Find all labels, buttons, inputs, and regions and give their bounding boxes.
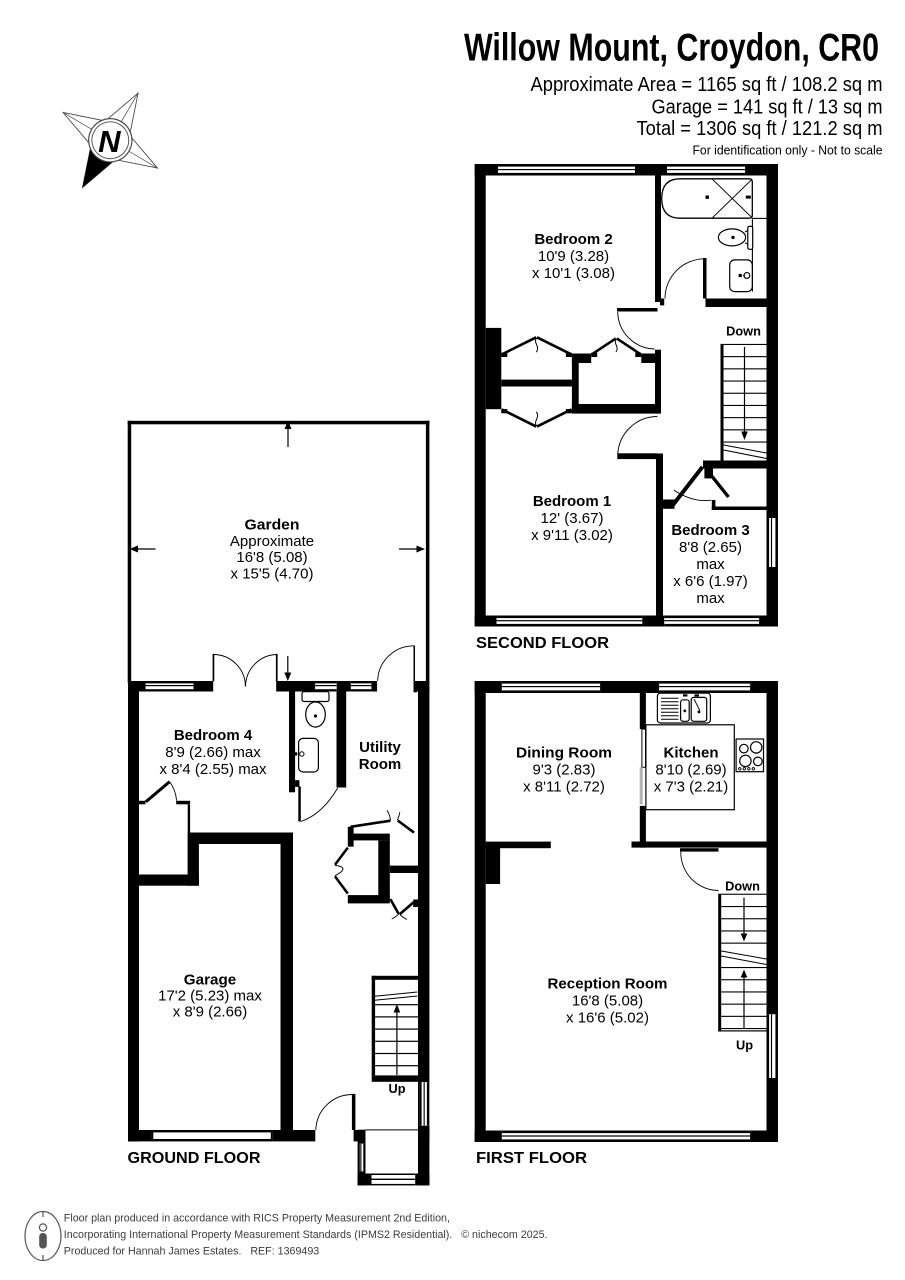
svg-text:10'9 (3.28): 10'9 (3.28) xyxy=(538,248,609,265)
svg-text:SECOND FLOOR: SECOND FLOOR xyxy=(476,635,609,652)
svg-text:Willow Mount, Croydon, CR0: Willow Mount, Croydon, CR0 xyxy=(464,27,879,70)
svg-text:Bedroom 4: Bedroom 4 xyxy=(174,727,253,744)
svg-text:N: N xyxy=(98,124,121,159)
svg-text:x 8'11 (2.72): x 8'11 (2.72) xyxy=(523,779,605,796)
svg-text:Produced for Hannah James Esta: Produced for Hannah James Estates. REF: … xyxy=(64,1246,320,1258)
svg-text:FIRST FLOOR: FIRST FLOOR xyxy=(476,1150,587,1167)
svg-text:Garden: Garden xyxy=(245,517,300,534)
svg-text:max: max xyxy=(696,590,725,607)
svg-text:9'3 (2.83): 9'3 (2.83) xyxy=(533,762,596,779)
svg-text:Bedroom 1: Bedroom 1 xyxy=(533,493,611,510)
svg-text:8'9 (2.66) max: 8'9 (2.66) max xyxy=(165,744,261,761)
svg-text:Down: Down xyxy=(726,324,761,339)
svg-text:Garage: Garage xyxy=(184,972,237,989)
svg-text:GROUND FLOOR: GROUND FLOOR xyxy=(128,1150,261,1167)
svg-text:x 8'9 (2.66): x 8'9 (2.66) xyxy=(173,1004,248,1021)
svg-text:x 8'4 (2.55) max: x 8'4 (2.55) max xyxy=(159,761,267,778)
svg-text:x 15'5 (4.70): x 15'5 (4.70) xyxy=(231,566,314,583)
svg-text:Approximate Area = 1165 sq ft: Approximate Area = 1165 sq ft / 108.2 sq… xyxy=(531,73,883,96)
svg-text:Bedroom 2: Bedroom 2 xyxy=(534,231,612,248)
svg-text:Garage = 141 sq ft / 13 sq m: Garage = 141 sq ft / 13 sq m xyxy=(652,95,883,118)
svg-text:Up: Up xyxy=(388,1081,405,1096)
svg-text:x 10'1 (3.08): x 10'1 (3.08) xyxy=(532,265,615,282)
svg-text:16'8 (5.08): 16'8 (5.08) xyxy=(572,993,643,1010)
svg-text:Incorporating International Pr: Incorporating International Property Mea… xyxy=(64,1229,548,1241)
svg-text:x 7'3 (2.21): x 7'3 (2.21) xyxy=(654,779,729,796)
svg-text:8'8 (2.65): 8'8 (2.65) xyxy=(679,539,742,556)
svg-text:12' (3.67): 12' (3.67) xyxy=(541,510,604,527)
svg-text:Up: Up xyxy=(736,1038,753,1053)
svg-text:Room: Room xyxy=(359,756,402,773)
svg-text:For identification only - Not: For identification only - Not to scale xyxy=(693,143,883,158)
svg-text:Utility: Utility xyxy=(359,739,401,756)
svg-text:max: max xyxy=(696,556,725,573)
svg-text:x 16'6 (5.02): x 16'6 (5.02) xyxy=(566,1010,649,1027)
svg-text:x 6'6 (1.97): x 6'6 (1.97) xyxy=(673,573,748,590)
svg-text:16'8 (5.08): 16'8 (5.08) xyxy=(236,549,307,566)
svg-text:Approximate: Approximate xyxy=(230,533,314,550)
svg-text:Reception Room: Reception Room xyxy=(548,976,668,993)
svg-text:8'10 (2.69): 8'10 (2.69) xyxy=(655,762,726,779)
svg-text:Kitchen: Kitchen xyxy=(663,745,718,762)
svg-text:17'2 (5.23) max: 17'2 (5.23) max xyxy=(158,988,262,1005)
svg-text:Floor plan produced in accorda: Floor plan produced in accordance with R… xyxy=(64,1213,450,1225)
svg-text:Bedroom 3: Bedroom 3 xyxy=(671,522,749,539)
svg-text:x 9'11 (3.02): x 9'11 (3.02) xyxy=(531,527,613,544)
svg-text:Down: Down xyxy=(725,879,760,894)
svg-text:Total = 1306 sq ft / 121.2 sq: Total = 1306 sq ft / 121.2 sq m xyxy=(637,117,883,140)
svg-text:Dining Room: Dining Room xyxy=(516,745,612,762)
